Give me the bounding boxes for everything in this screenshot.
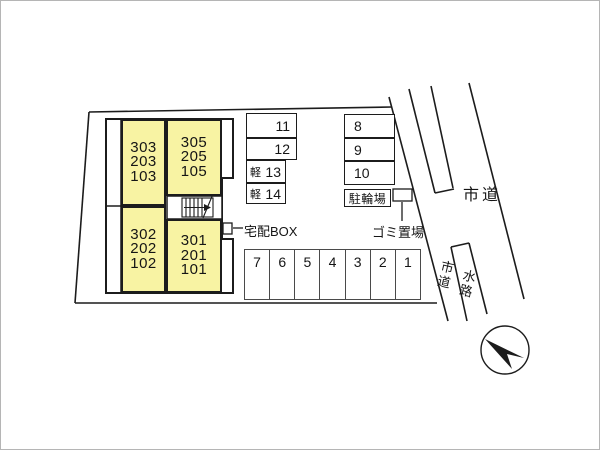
parking-number: 10	[354, 165, 370, 181]
parking-space-12: 12	[246, 138, 297, 160]
parking-space-6: 6	[270, 250, 295, 299]
delivery-box-label: 宅配BOX	[244, 221, 297, 240]
unit-block-303-203-103: 303 203 103	[121, 119, 166, 206]
parking-number: 8	[354, 118, 362, 134]
garbage-area-icon	[393, 189, 412, 201]
kei-car-mark: 軽	[250, 164, 261, 180]
parking-space-kei-14: 軽 14	[246, 183, 286, 204]
site-plan-linework	[1, 1, 600, 450]
unit-number: 105	[181, 165, 208, 180]
parking-space-7: 7	[245, 250, 270, 299]
parking-space-kei-13: 軽 13	[246, 160, 286, 183]
parking-space-9: 9	[344, 138, 395, 161]
parking-number: 11	[275, 118, 290, 134]
parking-space-1: 1	[396, 250, 420, 299]
city-road-label-main: 市道	[463, 181, 501, 205]
site-plan-canvas: 303 203 103 305 205 105 302 202 102 301 …	[0, 0, 600, 450]
parking-space-8: 8	[344, 114, 395, 138]
delivery-box-icon	[223, 223, 232, 234]
parking-space-5: 5	[295, 250, 320, 299]
unit-number: 103	[130, 170, 157, 185]
unit-block-302-202-102: 302 202 102	[121, 206, 166, 293]
parking-space-10: 10	[344, 161, 395, 185]
unit-number: 101	[181, 263, 208, 278]
unit-number: 102	[130, 257, 157, 272]
north-arrow-icon	[481, 326, 529, 374]
parking-space-2: 2	[371, 250, 396, 299]
parking-space-11: 11	[246, 113, 297, 138]
unit-block-301-201-101: 301 201 101	[166, 219, 222, 293]
parking-number: 9	[354, 142, 362, 158]
parking-row: 7 6 5 4 3 2 1	[244, 249, 421, 300]
bicycle-parking-label: 駐輪場	[349, 190, 387, 207]
parking-number: 13	[265, 164, 281, 180]
garbage-area-label: ゴミ置場	[372, 222, 424, 241]
parking-space-4: 4	[320, 250, 345, 299]
parking-number: 12	[274, 141, 290, 157]
unit-block-305-205-105: 305 205 105	[166, 119, 222, 196]
parking-space-3: 3	[346, 250, 371, 299]
bicycle-parking-box: 駐輪場	[344, 189, 391, 207]
parking-number: 14	[265, 186, 281, 202]
kei-car-mark: 軽	[250, 186, 261, 202]
